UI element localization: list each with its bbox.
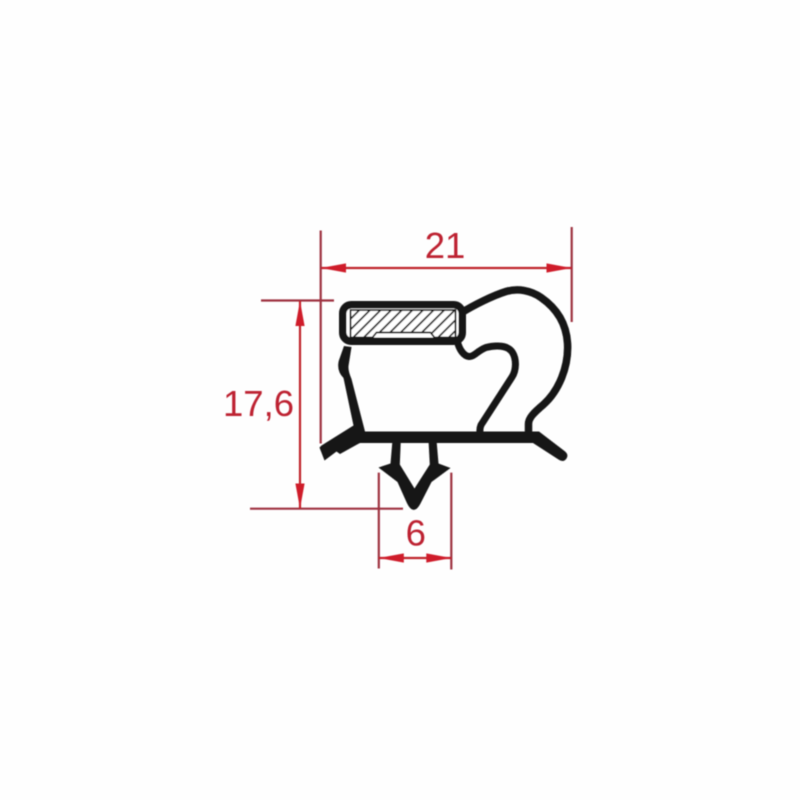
svg-text:6: 6: [406, 513, 426, 554]
svg-text:17,6: 17,6: [223, 383, 294, 424]
svg-text:21: 21: [425, 225, 466, 266]
